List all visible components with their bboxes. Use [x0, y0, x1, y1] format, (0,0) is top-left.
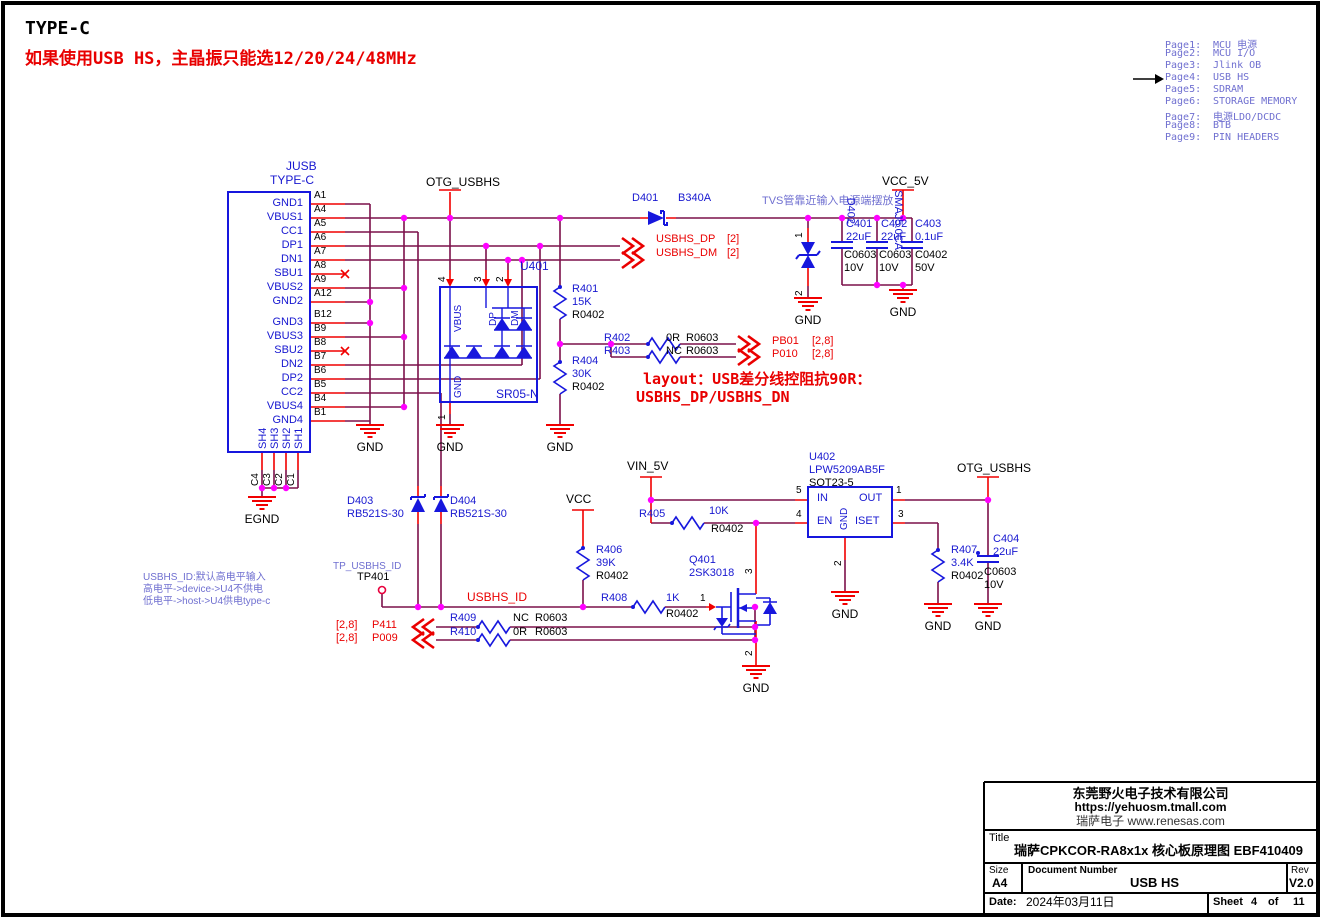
pin-number: B1	[314, 408, 326, 419]
gnd-label: GND	[540, 441, 580, 454]
u402-pin-iset: ISET	[855, 516, 879, 528]
note-usbhs-id-line1: USBHS_ID:默认高电平输入	[143, 573, 266, 584]
c402-voltage: 10V	[879, 263, 899, 275]
net-p009: P009	[372, 633, 398, 645]
c401-footprint: C0603	[844, 250, 876, 262]
r407-footprint: R0402	[951, 571, 983, 583]
q401-ref: Q401	[689, 555, 716, 567]
terminal-dots	[476, 285, 980, 642]
pin-name: SBU2	[233, 345, 303, 357]
gnd-label: GND	[883, 306, 923, 319]
title-label: Title	[989, 833, 1009, 845]
r408-value: 1K	[666, 593, 679, 605]
c404-footprint: C0603	[984, 567, 1016, 579]
pin-number: A7	[314, 247, 326, 258]
net-p411-page: [2,8]	[336, 620, 357, 632]
r404-ref: R404	[572, 356, 598, 368]
page-label: Jlink OB	[1213, 60, 1261, 71]
sheet-of-label: of	[1268, 897, 1278, 909]
d403-ref: D403	[347, 496, 373, 508]
pin-number: A5	[314, 219, 326, 230]
shield-pin-name: SH1	[294, 428, 306, 449]
shield-pin-name: SH4	[258, 428, 270, 449]
net-usbhs-dp: USBHS_DP	[656, 234, 715, 246]
page-index-item: Page9:PIN HEADERS	[1165, 132, 1279, 143]
pin-number: B9	[314, 324, 326, 335]
u402-pin2-num: 2	[834, 560, 845, 566]
doc-number-value: USB HS	[1022, 876, 1287, 890]
sheet-number: 4	[1251, 897, 1257, 909]
r408-ref: R408	[601, 593, 627, 605]
r409-footprint: R0603	[535, 613, 567, 625]
d404-ref: D404	[450, 496, 476, 508]
gnd-label: GND	[825, 608, 865, 621]
net-otg-usbhs-right: OTG_USBHS	[957, 462, 1031, 475]
sheet-label: Sheet	[1213, 897, 1243, 909]
net-pb01-page: [2,8]	[812, 336, 833, 348]
d402-tvs-symbol	[796, 242, 820, 268]
r401-value: 15K	[572, 297, 592, 309]
u402-pin5-num: 5	[796, 486, 802, 497]
pin-name: GND1	[233, 198, 303, 210]
page-num: Page5:	[1165, 84, 1213, 95]
net-p010: P010	[772, 349, 798, 361]
size-label: Size	[989, 866, 1008, 877]
page-label: SDRAM	[1213, 84, 1243, 95]
r405-footprint: R0402	[711, 524, 743, 536]
pin-number: A12	[314, 289, 332, 300]
page-num: Page2:	[1165, 48, 1213, 59]
pin-name: DP1	[233, 240, 303, 252]
u402-pin-in: IN	[817, 493, 828, 505]
r405-ref: R405	[639, 509, 665, 521]
net-p010-page: [2,8]	[812, 349, 833, 361]
page-index-item: Page8:BTB	[1165, 120, 1231, 131]
pin-name: VBUS1	[233, 212, 303, 224]
connector-part: TYPE-C	[270, 174, 314, 187]
u401-pin-dp: DP	[489, 312, 500, 326]
c401-value: 22uF	[846, 232, 871, 244]
r409-value: NC	[513, 613, 529, 625]
u401-pin3-num: 3	[474, 276, 485, 282]
rev-label: Rev	[1291, 866, 1309, 877]
shield-pin-number: C3	[263, 473, 274, 486]
pin-number: B12	[314, 310, 332, 321]
net-pb01: PB01	[772, 336, 799, 348]
page-index-item: Page3:Jlink OB	[1165, 60, 1261, 71]
r401-ref: R401	[572, 284, 598, 296]
shield-pin-number: C2	[275, 473, 286, 486]
pin-number: A4	[314, 205, 326, 216]
net-usbhs-id: USBHS_ID	[467, 591, 527, 604]
r405-value: 10K	[709, 506, 729, 518]
r406-ref: R406	[596, 545, 622, 557]
c404-value: 22uF	[993, 547, 1018, 559]
r410-value: 0R	[513, 627, 527, 639]
date-value: 2024年03月11日	[1026, 896, 1115, 909]
u401-pin-dm: DM	[511, 310, 522, 326]
page-index-item: Page6:STORAGE MEMORY	[1165, 96, 1297, 107]
r404-value: 30K	[572, 369, 592, 381]
net-vin-5v: VIN_5V	[627, 460, 668, 473]
u402-package: SOT23-5	[809, 478, 854, 490]
d404-diode-symbol	[434, 494, 448, 512]
pin-name: GND3	[233, 317, 303, 329]
page-num: Page8:	[1165, 120, 1213, 131]
pin-number: A9	[314, 275, 326, 286]
d403-value: RB521S-30	[347, 509, 404, 521]
q401-gate-num: 1	[700, 594, 706, 605]
u402-ref: U402	[809, 452, 835, 464]
doc-number-label: Document Number	[1028, 866, 1117, 877]
r402-value: 0R	[666, 333, 680, 345]
pin-name: CC2	[233, 387, 303, 399]
pin-number: B8	[314, 338, 326, 349]
tp401-ref: TP401	[357, 572, 389, 584]
c402-value: 22uF	[881, 232, 906, 244]
page-label: STORAGE MEMORY	[1213, 96, 1297, 107]
u401-ref: U401	[520, 260, 549, 273]
tp401-testpoint-symbol	[379, 587, 386, 594]
note-usbhs-id-line2: 高电平->device->U4不供电	[143, 585, 263, 596]
u401-pin2-num: 2	[496, 276, 507, 282]
net-p009-page: [2,8]	[336, 633, 357, 645]
shield-pin-number: C4	[251, 473, 262, 486]
note-layout-line1: layout：USB差分线控阻抗90R：	[643, 368, 871, 389]
page-label: BTB	[1213, 120, 1231, 131]
q401-drain-num: 3	[745, 568, 756, 574]
u401-pin-vbus: VBUS	[454, 305, 465, 332]
date-label: Date:	[989, 897, 1017, 909]
pin-number: A6	[314, 233, 326, 244]
schematic-page: TYPE-C 如果使用USB HS，主晶振只能选12/20/24/48MHz P…	[0, 0, 1321, 918]
net-p411: P411	[372, 620, 397, 632]
pin-name: CC1	[233, 226, 303, 238]
r402-ref: R402	[604, 333, 630, 345]
pin-name: DN1	[233, 254, 303, 266]
gnd-label: GND	[918, 620, 958, 633]
sheet-title: 瑞萨CPKCOR-RA8x1x 核心板原理图 EBF410409	[1000, 844, 1317, 858]
pin-number: B5	[314, 380, 326, 391]
pin-arrows	[446, 279, 716, 611]
page-index-item: Page5:SDRAM	[1165, 84, 1243, 95]
page-label: MCU I/O	[1213, 48, 1255, 59]
d403-diode-symbol	[411, 494, 425, 512]
c403-voltage: 50V	[915, 263, 935, 275]
page-label: USB HS	[1213, 72, 1249, 83]
r401-footprint: R0402	[572, 310, 604, 322]
company-url: https://yehuosm.tmall.com	[984, 801, 1317, 814]
shield-pin-name: SH2	[282, 428, 294, 449]
rev-value: V2.0	[1289, 877, 1314, 890]
d401-ref: D401	[632, 193, 658, 205]
pin-name: VBUS2	[233, 282, 303, 294]
r410-footprint: R0603	[535, 627, 567, 639]
pin-name: GND4	[233, 415, 303, 427]
r402-footprint: R0603	[686, 333, 718, 345]
renesas-url: 瑞萨电子 www.renesas.com	[984, 815, 1317, 828]
r410-ref: R410	[450, 627, 476, 639]
page-num: Page9:	[1165, 132, 1213, 143]
gnd-label: GND	[736, 682, 776, 695]
d404-value: RB521S-30	[450, 509, 507, 521]
gnd-label: GND	[788, 314, 828, 327]
pin-name: SBU1	[233, 268, 303, 280]
u402-pin1-num: 1	[896, 486, 902, 497]
net-usbhs-dm-page: [2]	[727, 248, 739, 260]
gnd-label: GND	[350, 441, 390, 454]
q401-source-num: 2	[745, 650, 756, 656]
c403-ref: C403	[915, 219, 941, 231]
d402-pin1: 1	[795, 232, 806, 238]
u402-pin-gnd: GND	[840, 508, 851, 530]
shield-pin-name: SH3	[270, 428, 282, 449]
r403-value: NC	[666, 346, 682, 358]
c404-voltage: 10V	[984, 580, 1004, 592]
r404-footprint: R0402	[572, 382, 604, 394]
page-index-item-current: Page4:USB HS	[1165, 72, 1249, 83]
page-num: Page3:	[1165, 60, 1213, 71]
pin-number: B7	[314, 352, 326, 363]
company-name: 东莞野火电子技术有限公司	[984, 787, 1317, 801]
c401-voltage: 10V	[844, 263, 864, 275]
r407-ref: R407	[951, 545, 977, 557]
d401-value: B340A	[678, 193, 711, 205]
c404-ref: C404	[993, 534, 1019, 546]
page-num: Page4:	[1165, 72, 1213, 83]
u402-pin-en: EN	[817, 516, 832, 528]
page4-arrow-icon	[1133, 74, 1164, 84]
page-index-item: Page2:MCU I/O	[1165, 48, 1255, 59]
u401-pin1-num: 1	[438, 414, 449, 420]
shield-pin-number: C1	[287, 473, 298, 486]
u402-pin-out: OUT	[859, 493, 882, 505]
r406-footprint: R0402	[596, 571, 628, 583]
r407-value: 3.4K	[951, 558, 974, 570]
pin-number: B6	[314, 366, 326, 377]
u402-value: LPW5209AB5F	[809, 465, 885, 477]
c403-footprint: C0402	[915, 250, 947, 262]
r408-footprint: R0402	[666, 609, 698, 621]
q401-value: 2SK3018	[689, 568, 734, 580]
pin-name: DP2	[233, 373, 303, 385]
net-otg-usbhs-top: OTG_USBHS	[426, 176, 500, 189]
pin-name: DN2	[233, 359, 303, 371]
pin-number: A1	[314, 191, 326, 202]
u401-value: SR05-N	[496, 388, 539, 401]
c402-ref: C402	[881, 219, 907, 231]
egnd-label: EGND	[240, 513, 284, 526]
gnd-label: GND	[968, 620, 1008, 633]
sheet-total: 11	[1293, 897, 1305, 909]
u402-pin4-num: 4	[796, 510, 802, 521]
d401-diode-symbol	[648, 211, 667, 225]
page-title: TYPE-C	[25, 18, 90, 39]
r406-value: 39K	[596, 558, 616, 570]
c402-footprint: C0603	[879, 250, 911, 262]
net-usbhs-dp-page: [2]	[727, 234, 739, 246]
net-vcc-5v: VCC_5V	[882, 175, 929, 188]
note-layout-line2: USBHS_DP/USBHS_DN	[636, 388, 790, 406]
d402-pin2: 2	[795, 290, 806, 296]
r403-footprint: R0603	[686, 346, 718, 358]
page-num: Page6:	[1165, 96, 1213, 107]
r409-ref: R409	[450, 613, 476, 625]
u401-pin-gnd: GND	[454, 376, 465, 398]
u401-pin4-num: 4	[438, 276, 449, 282]
pin-number: B4	[314, 394, 326, 405]
size-value: A4	[992, 877, 1007, 890]
net-usbhs-dm: USBHS_DM	[656, 248, 717, 260]
note-tvs-placement: TVS管靠近输入电源端摆放	[762, 196, 893, 208]
r403-ref: R403	[604, 346, 630, 358]
page-subtitle-note: 如果使用USB HS，主晶振只能选12/20/24/48MHz	[25, 44, 417, 69]
pin-number: A8	[314, 261, 326, 272]
net-vcc: VCC	[566, 493, 591, 506]
note-usbhs-id-line3: 低电平->host->U4供电type-c	[143, 597, 270, 608]
u402-pin3-num: 3	[898, 510, 904, 521]
gnd-label: GND	[430, 441, 470, 454]
page-label: PIN HEADERS	[1213, 132, 1279, 143]
pin-name: GND2	[233, 296, 303, 308]
pin-name: VBUS4	[233, 401, 303, 413]
pin-name: VBUS3	[233, 331, 303, 343]
c401-ref: C401	[846, 219, 872, 231]
c403-value: 0.1uF	[915, 232, 943, 244]
connector-ref: JUSB	[286, 160, 317, 173]
